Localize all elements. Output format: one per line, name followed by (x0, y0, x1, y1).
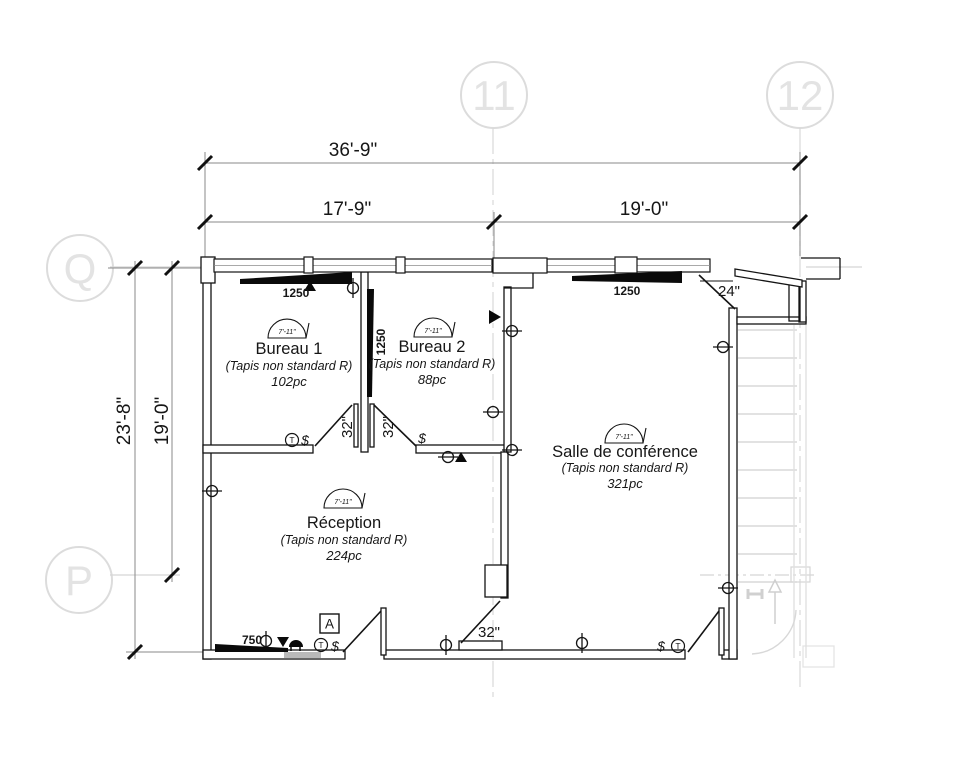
room-name-bureau1: Bureau 1 (256, 340, 323, 358)
thermostat-label: T (318, 640, 323, 650)
diffuser-label-bureau2: 1250 (374, 328, 388, 355)
ceiling-height: 7'-11" (278, 329, 296, 336)
window-panel (493, 258, 547, 273)
diffuser-bar-bureau2 (367, 289, 374, 397)
grid-label-11: 11 (472, 72, 516, 119)
ceiling-height: 7'-11" (424, 328, 442, 335)
grid-label-Q: Q (64, 245, 97, 292)
door-jamb (381, 608, 386, 655)
diffuser-bar-bureau1 (240, 272, 352, 284)
door-width-rear: 24" (718, 283, 740, 300)
ceiling-height: 7'-11" (615, 434, 633, 441)
wall-bottom-mid (384, 650, 685, 659)
wall-reception-left (203, 445, 313, 453)
stairs (738, 325, 806, 658)
wall-hatch (284, 652, 321, 658)
room-note-conference: (Tapis non standard R) (562, 461, 689, 475)
grid-layer (46, 62, 862, 698)
exhaust-symbol (289, 640, 303, 647)
door-frame-rear (789, 283, 800, 321)
grid-label-P: P (65, 557, 93, 604)
wall-left-exterior (203, 263, 211, 659)
room-name-reception: Réception (307, 514, 381, 532)
switch-label: $ (330, 638, 339, 654)
room-area-bureau1: 102pc (271, 374, 307, 389)
window-mullion-wide (615, 257, 637, 273)
switch-label: $ (417, 430, 426, 446)
thermostat-label: T (289, 435, 294, 445)
wall-angled-ne (735, 269, 802, 287)
dim-left-inner: 19'-0" (152, 397, 173, 445)
wall-bureau2-right (504, 287, 511, 452)
dimension-layer (108, 152, 807, 659)
room-note-bureau2: (Tapis non standard R) (369, 357, 496, 371)
diffuser-label-bureau1: 1250 (283, 286, 310, 300)
door-leaf-bottom-right (688, 611, 719, 652)
window-wall (214, 257, 710, 273)
dim-top-left: 17'-9" (323, 199, 371, 220)
air-terminal-triangle-down (277, 637, 289, 647)
wall-bureau-divider (361, 272, 368, 452)
dim-ticks (128, 156, 807, 659)
room-name-conference: Salle de conférence (552, 443, 698, 461)
ceiling-height: 7'-11" (334, 499, 352, 506)
floor-plan-sheet: 11 12 Q P (0, 0, 963, 768)
door-leaf-bottom-left (343, 611, 381, 652)
wall-conference-bump (485, 565, 507, 597)
dim-left-overall: 23'-8" (114, 397, 135, 445)
room-name-bureau2: Bureau 2 (399, 338, 466, 356)
section-tag-label: A (325, 617, 334, 632)
existing-door-arc (752, 610, 796, 654)
window-mullion (304, 257, 313, 273)
dim-top-right: 19'-0" (620, 199, 668, 220)
door-width-bureau1: 32" (339, 416, 356, 438)
wall-conference-nw-step (504, 272, 533, 288)
wall-corner-post (201, 257, 215, 283)
air-terminal-triangle-right (489, 310, 501, 324)
switch-label: $ (656, 638, 665, 654)
door-hardware-icon (748, 589, 762, 599)
grid-label-12: 12 (777, 72, 824, 119)
door-width-side: 32" (478, 624, 500, 641)
thermostat-label: T (675, 641, 680, 651)
section-tag: A (320, 614, 339, 633)
room-area-bureau2: 88pc (418, 372, 447, 387)
door-threshold (459, 641, 502, 650)
room-area-conference: 321pc (607, 476, 643, 491)
window-mullion (396, 257, 405, 273)
diffuser-label-reception: 750 (242, 633, 262, 647)
wall-conference-right (729, 308, 737, 659)
wall-reception-right (416, 445, 505, 453)
room-note-reception: (Tapis non standard R) (281, 533, 408, 547)
door-jamb (370, 404, 374, 447)
diffuser-label-conference: 1250 (614, 284, 641, 298)
stair-up-arrow (769, 580, 781, 624)
dim-top-overall: 36'-9" (329, 140, 377, 161)
walls (201, 257, 840, 659)
door-jamb (719, 608, 724, 655)
room-area-reception: 224pc (325, 548, 362, 563)
existing-wall-ghost (803, 646, 834, 667)
room-note-bureau1: (Tapis non standard R) (226, 359, 353, 373)
door-width-bureau2: 32" (380, 416, 397, 438)
switch-label: $ (300, 432, 309, 448)
